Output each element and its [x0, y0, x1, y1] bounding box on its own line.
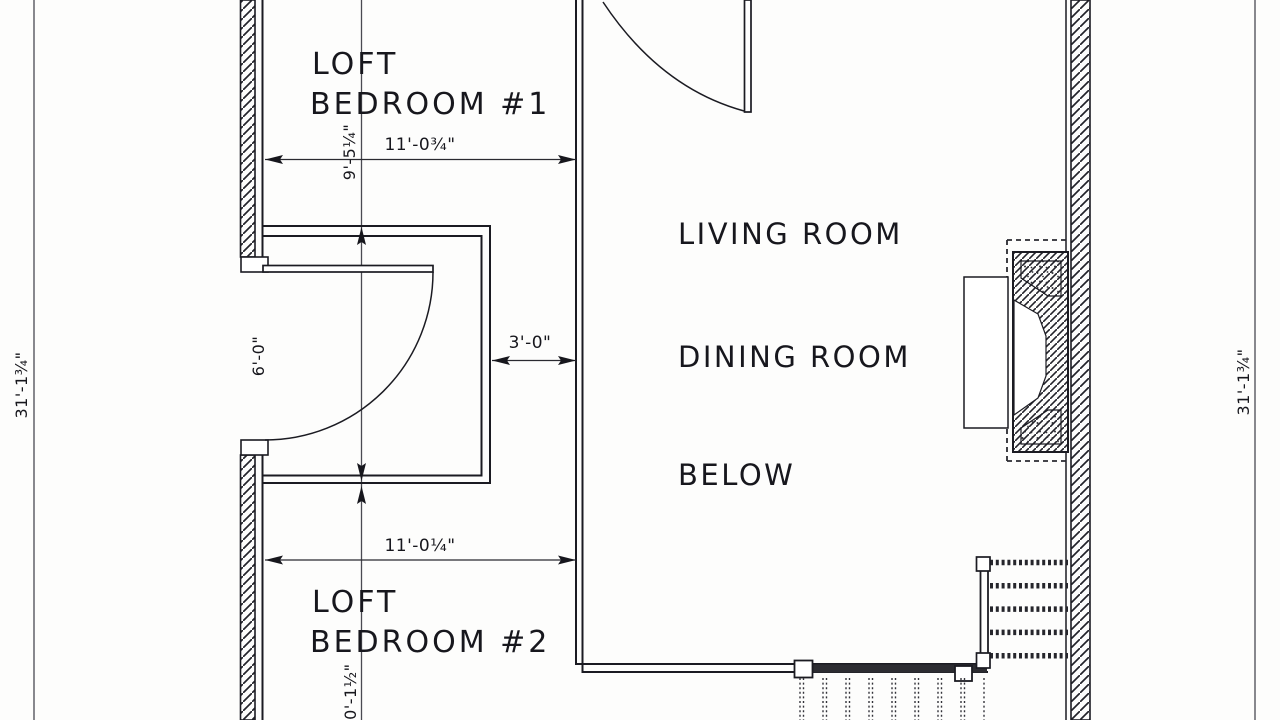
below-label: BELOW [678, 458, 795, 492]
dining-room-label: DINING ROOM [678, 340, 911, 374]
upper-door-leaf [745, 0, 752, 112]
hearth [964, 277, 1008, 428]
door-jamb-bottom [241, 440, 268, 455]
railing-post-left [795, 661, 813, 678]
bedroom2-label-line2: BEDROOM #2 [310, 625, 550, 660]
bedroom1-label-line2: BEDROOM #1 [310, 87, 550, 122]
overall-left-dim-text: 31'-1¾" [12, 351, 31, 418]
living-room-label: LIVING ROOM [678, 217, 903, 251]
stair-newel-top [977, 557, 991, 571]
door-opening-dim-text: 6'-0" [249, 336, 268, 376]
floor-plan-drawing: LOFT BEDROOM #1 LIVING ROOM DINING ROOM … [0, 0, 1280, 720]
bedroom2-depth-dim-text: 10'-1½" [341, 663, 360, 720]
bedroom1-label-line1: LOFT [312, 47, 398, 82]
stair-newel-bottom [977, 653, 991, 668]
overall-right-dim-text: 31'-1¾" [1234, 348, 1253, 415]
closet-door-leaf [263, 266, 433, 273]
floor-plan-page: LOFT BEDROOM #1 LIVING ROOM DINING ROOM … [0, 0, 1280, 720]
railing-post-right [955, 666, 972, 681]
hall-width-dim-text: 3'-0" [509, 333, 552, 353]
bedroom1-width-dim-text: 11'-0¾" [384, 135, 455, 155]
bedroom2-width-dim-text: 11'-0¼" [384, 536, 455, 556]
closet-depth-dim-text: 9'-5¼" [340, 124, 359, 180]
bedroom2-label-line1: LOFT [312, 585, 398, 620]
